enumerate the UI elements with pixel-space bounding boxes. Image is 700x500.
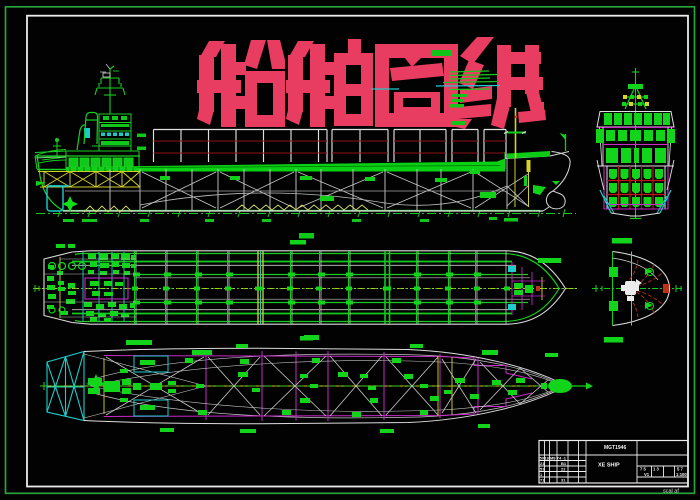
svg-text:MGT1946: MGT1946 bbox=[604, 445, 626, 451]
svg-text:5 7: 5 7 bbox=[677, 467, 683, 472]
svg-text:31: 31 bbox=[561, 478, 566, 483]
svg-text:1 3: 1 3 bbox=[653, 467, 659, 472]
svg-text:V1: V1 bbox=[644, 472, 650, 477]
svg-text:scal af: scal af bbox=[663, 489, 679, 495]
svg-text:21: 21 bbox=[540, 461, 545, 466]
svg-text:5X18 M9 T4 -1: 5X18 M9 T4 -1 bbox=[540, 456, 567, 461]
svg-text:1:100: 1:100 bbox=[676, 472, 687, 477]
svg-text:XE SHIP: XE SHIP bbox=[598, 463, 620, 469]
svg-text:22: 22 bbox=[561, 467, 566, 472]
svg-text:51: 51 bbox=[540, 467, 545, 472]
svg-text:7 5: 7 5 bbox=[640, 467, 646, 472]
svg-text:71: 71 bbox=[540, 478, 545, 483]
svg-text:B1: B1 bbox=[561, 461, 567, 466]
